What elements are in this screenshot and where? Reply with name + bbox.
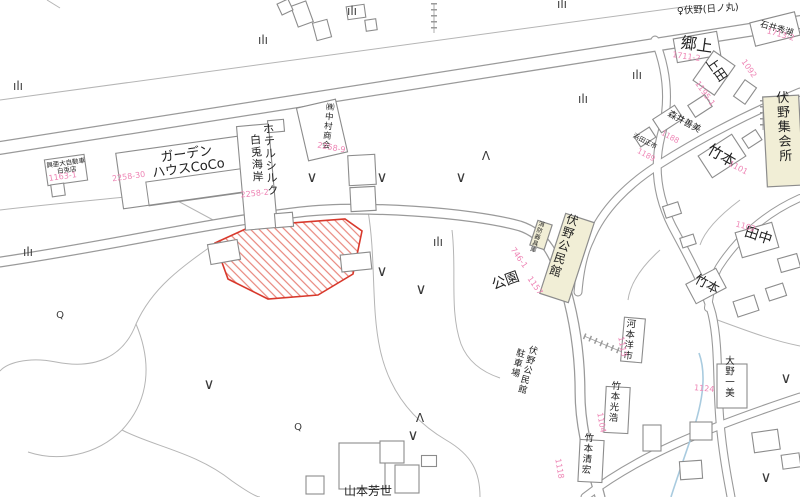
svg-text:1092: 1092 [740, 58, 759, 80]
lot-1118: 1118 [553, 458, 565, 480]
svg-text:山本芳世: 山本芳世 [344, 484, 392, 497]
lot-1101: 1101 [727, 159, 749, 177]
conifer-symbol: Λ [482, 149, 491, 163]
label-kouminkan-parking: 伏野公民館駐車場 [506, 341, 539, 397]
lot-746-1: 746-1 [509, 245, 530, 269]
chevron-symbol: ∨ [761, 468, 772, 486]
label-yamamoto-yoshiyo: 山本芳世 [344, 484, 392, 497]
paddy-symbol: ılı [347, 4, 357, 18]
chevron-symbol: ∨ [204, 375, 215, 393]
svg-text:1157: 1157 [526, 275, 545, 297]
roads [0, 22, 800, 497]
map-viewport[interactable]: ガーデンハウスCoCoホテルシルク白兎海岸㈱中村商会興亜大自動車白兎店♀伏野(日… [0, 0, 800, 497]
svg-text:♀伏野(日ノ丸): ♀伏野(日ノ丸) [677, 1, 740, 17]
chevron-symbol: ∨ [408, 426, 419, 444]
paddy-symbol: ılı [578, 92, 588, 106]
chevron-symbol: ∨ [781, 369, 792, 387]
paddy-symbol: ılı [258, 33, 268, 47]
paddy-symbol: ılı [13, 79, 23, 93]
label-ohno-kazumi: 大野一美 [725, 355, 735, 399]
chevron-symbol: ∨ [416, 280, 427, 298]
chevron-symbol: ∨ [377, 168, 388, 186]
paddy-symbol: ılı [557, 0, 567, 11]
lot-1124: 1124 [694, 383, 715, 394]
chevron-symbol: ∨ [456, 168, 467, 186]
svg-text:746-1: 746-1 [509, 245, 530, 269]
svg-text:大野一美: 大野一美 [725, 355, 735, 399]
paddy-symbol: ılı [23, 245, 33, 259]
label-busstop-fushino-hinomaru: ♀伏野(日ノ丸) [677, 1, 740, 17]
svg-text:公園: 公園 [490, 269, 522, 294]
lot-1157: 1157 [526, 275, 545, 297]
conifer-symbol: Λ [416, 411, 425, 425]
label-kouen: 公園 [490, 269, 522, 294]
svg-text:1118: 1118 [553, 458, 565, 480]
svg-text:1101: 1101 [727, 159, 749, 177]
paddy-symbol: ılı [632, 68, 642, 82]
pole-symbol: Q [294, 422, 302, 433]
paddy-symbol: ılı [433, 235, 443, 249]
map-canvas[interactable]: ガーデンハウスCoCoホテルシルク白兎海岸㈱中村商会興亜大自動車白兎店♀伏野(日… [0, 0, 800, 497]
svg-text:1124: 1124 [694, 383, 715, 394]
pole-symbol: Q [56, 310, 64, 321]
lot-1092: 1092 [740, 58, 759, 80]
chevron-symbol: ∨ [377, 262, 388, 280]
chevron-symbol: ∨ [307, 168, 318, 186]
